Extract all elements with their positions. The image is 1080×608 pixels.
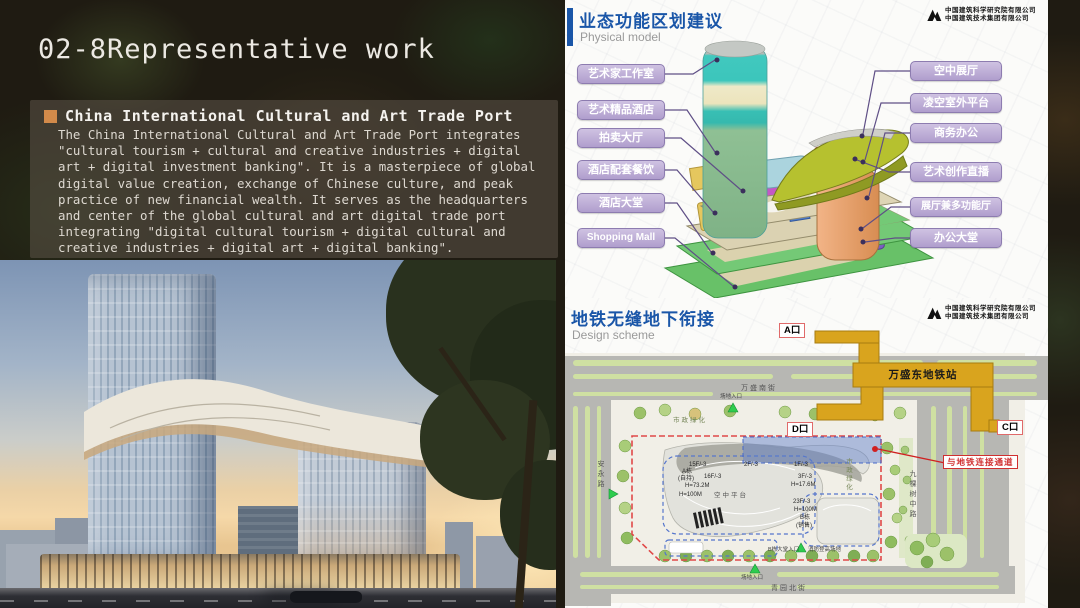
- podium-1f: 1F/-3: [794, 462, 808, 468]
- physical-model-panel: 业态功能区划建议 Physical model 中国建筑科学研究院有限公司 中国…: [565, 0, 1048, 298]
- tower-a-height: H=73.2M: [685, 483, 710, 489]
- function-label-hotel-lobby: 酒店大堂: [577, 193, 665, 213]
- sky-platform-label: 空中平台: [714, 493, 748, 500]
- function-label-multifunction-hall: 展厅兼多功能厅: [910, 197, 1002, 217]
- tower-b-height: H=100M: [794, 507, 817, 513]
- parking-ramp: [669, 542, 703, 553]
- page-title: 02-8Representative work: [38, 34, 435, 65]
- function-label-artist-studio: 艺术家工作室: [577, 64, 665, 84]
- function-label-outdoor-platform: 凌空室外平台: [910, 93, 1002, 113]
- tower-a-name: A栋: [682, 469, 692, 475]
- metro-station-label: 万盛东地铁站: [853, 363, 993, 387]
- intro-panel: China International Cultural and Art Tra…: [30, 100, 558, 258]
- function-label-auction-hall: 拍卖大厅: [577, 128, 665, 148]
- tower-b-name: B栋: [800, 515, 810, 521]
- metro-connection-label: 与地铁连接通道: [943, 455, 1018, 469]
- greening-label-v: 市政绿化: [844, 458, 851, 492]
- entrance-bottom-label: 场地入口: [741, 576, 763, 582]
- metro-passage: [743, 437, 881, 463]
- teal-tower-cap: [705, 41, 765, 57]
- bullet-square-icon: [44, 110, 57, 123]
- road-name-north: 万盛南街: [741, 385, 777, 392]
- building-photo: [0, 260, 556, 608]
- photo-lane-markings: [0, 600, 556, 602]
- function-label-hotel-catering: 酒店配套餐饮: [577, 160, 665, 180]
- intro-heading: China International Cultural and Art Tra…: [65, 107, 513, 125]
- photo-car: [290, 591, 362, 603]
- photo-podium: [40, 554, 460, 592]
- entrance-b-label: B栋大堂入口: [768, 548, 799, 554]
- photo-road: [0, 588, 556, 608]
- tower-a-floors: 16F/-3: [704, 474, 721, 480]
- tower-a-height-max: H=100M: [679, 492, 702, 498]
- slide-canvas: 02-8Representative work China Internatio…: [0, 0, 1080, 608]
- exploded-model-diagram: [565, 0, 1048, 298]
- road-name-east: 九棵树中路: [909, 470, 916, 520]
- intro-body: The China International Cultural and Art…: [58, 127, 550, 257]
- fire-ground-label: 消防登高场地: [808, 548, 841, 554]
- design-scheme-panel: 地铁无缝地下衔接 Design scheme 中国建筑科学研究院有限公司 中国建…: [565, 298, 1048, 608]
- tower-a-tenure: (自持): [678, 476, 694, 482]
- function-label-boutique-hotel: 艺术精品酒店: [577, 100, 665, 120]
- podium-2f: 2F/-3: [744, 462, 758, 468]
- function-label-office-lobby: 办公大堂: [910, 228, 1002, 248]
- teal-tower-body: [703, 46, 767, 238]
- connection-dot: [872, 446, 878, 452]
- metro-exit-a: A口: [779, 323, 805, 338]
- intro-heading-row: China International Cultural and Art Tra…: [44, 107, 513, 125]
- function-label-business-office: 商务办公: [910, 123, 1002, 143]
- podium-3f-height: H=17.6M: [791, 482, 816, 488]
- right-column: 业态功能区划建议 Physical model 中国建筑科学研究院有限公司 中国…: [565, 0, 1048, 608]
- tower-b-tenure: (销售): [796, 523, 812, 529]
- greening-label-h: 市政绿化: [673, 418, 707, 425]
- function-label-sky-gallery: 空中展厅: [910, 61, 1002, 81]
- metro-exit-c: C口: [997, 420, 1023, 435]
- metro-exit-d: D口: [787, 422, 813, 437]
- podium-3f: 3F/-3: [798, 474, 812, 480]
- tower-b-floors: 23F/-3: [793, 499, 810, 505]
- road-name-west: 安永路: [597, 460, 604, 490]
- road-name-south: 青园北街: [771, 585, 807, 592]
- function-label-art-livestream: 艺术创作直播: [910, 162, 1002, 182]
- site-plan-drawing: [565, 298, 1048, 608]
- tower-a-wing-floors: 15F/-3: [689, 462, 706, 468]
- entrance-top-label: 场地入口: [720, 395, 742, 401]
- hotel-teal-tower: [703, 41, 767, 238]
- function-label-shopping-mall: Shopping Mall: [577, 228, 665, 248]
